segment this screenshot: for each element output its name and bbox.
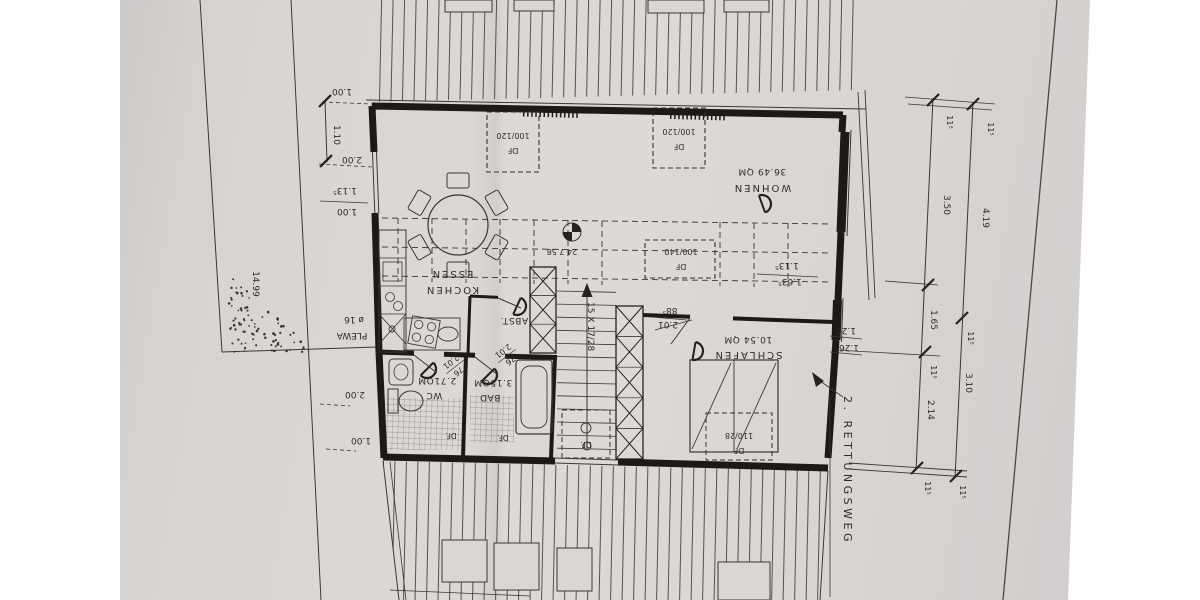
roof-window-df-3: DF	[675, 262, 686, 271]
room-label-schlafen: SCHLAFEN	[713, 349, 782, 360]
stair-roof-window-box	[562, 410, 610, 458]
roof-window-size-3: 100/140	[664, 247, 697, 256]
chimney-box	[379, 314, 406, 344]
stair-note-label: 15 X 17/28	[585, 302, 595, 352]
photo-of-floor-plan: 1.00 2.00 1.13⁵ 1.00 2.00 1.00 ø 16 PLEW…	[0, 0, 1200, 600]
roof-window-small-stairs: DF.	[580, 440, 591, 449]
dim-left-b: 2.00	[342, 154, 362, 164]
roof-window-small-wc: DF.	[445, 431, 456, 440]
washbasin	[389, 359, 413, 385]
window-dim-b: 1.26	[839, 342, 859, 352]
roof-window-box-3	[645, 240, 715, 278]
cooktop	[408, 316, 440, 348]
roof-eave-lines-right	[858, 90, 875, 300]
dim-left-bottom-b: 1.00	[351, 435, 371, 445]
dim-left-frac-top: 1.13⁵	[333, 185, 357, 195]
door-schlafen-height: 2.01	[658, 319, 678, 329]
flue-note-label: 24 7.58	[547, 247, 578, 256]
roof-hatch-bottom	[383, 461, 828, 600]
door-swing-abst	[513, 298, 529, 318]
dim-left-total: 14.99	[250, 271, 260, 297]
sill-dim-top: 1.13⁵	[775, 260, 799, 270]
door-swing-schlafen	[692, 342, 704, 361]
bathtub	[516, 360, 552, 434]
wall-thickness-5: 11⁵	[923, 481, 932, 494]
window-dim-a: 1.26	[836, 325, 856, 335]
room-label-bad: BAD	[479, 392, 500, 402]
room-area-wc: 2.71QM	[418, 375, 457, 385]
tile-floor-wc	[386, 398, 462, 450]
stair-direction-arrow	[582, 283, 593, 297]
wall-thickness-2: 11⁵	[986, 122, 995, 135]
roof-window-df-4: DF	[733, 446, 744, 455]
kitchen-sink-oval	[438, 327, 458, 341]
escape-route-label: 2. RETTUNGSWEG	[841, 396, 854, 545]
room-label-essen: ESSEN	[431, 268, 474, 279]
roof-window-size-1: 100/120	[496, 131, 529, 140]
wall-thickness-1: 11⁵	[945, 115, 954, 128]
roof-window-box-1	[487, 112, 539, 172]
room-label-wc: WC	[426, 390, 442, 400]
dim-right-inner-b: 1.65	[928, 310, 938, 330]
window-right-wall-top	[841, 130, 851, 236]
dining-table	[407, 173, 508, 277]
roof-window-df-2: DF	[673, 142, 684, 151]
roof-window-size-4: 110/28	[725, 431, 753, 440]
room-area-bad: 3.15QM	[474, 377, 513, 387]
dim-right-outer-a: 4.19	[980, 208, 990, 228]
dim-left-top: 1.00	[332, 86, 352, 96]
room-label-kochen: KOCHEN	[425, 284, 479, 295]
wall-thickness-3: 11⁵	[966, 331, 975, 344]
oven	[383, 262, 402, 281]
chimney-brand-label: PLEWA	[336, 330, 368, 340]
roof-window-size-2: 100/120	[662, 127, 695, 136]
room-label-abst: ABST.	[500, 315, 528, 325]
roof-window-small-bad: DF.	[497, 433, 508, 442]
sink-bowl-2	[394, 302, 403, 311]
sheet-border-line-right	[1003, 0, 1057, 600]
sink-bowl-1	[386, 293, 395, 302]
chimney-size-label: ø 16	[344, 314, 364, 324]
door-schlafen-width: 88⁵	[662, 305, 677, 315]
stipple-texture	[228, 278, 305, 353]
window-left-wall	[373, 152, 379, 213]
wall-thickness-4: 11⁵	[929, 365, 938, 378]
roof-window-df-1: DF	[507, 146, 518, 155]
flue-symbol	[563, 223, 581, 241]
room-area-schlafen: 10.54 QM	[724, 334, 772, 344]
door-swing-wohnen	[759, 192, 774, 212]
dining-chairs	[407, 173, 508, 277]
dim-left-frac-bottom: 1.00	[337, 206, 357, 216]
room-area-wohnen: 36.49 QM	[738, 166, 786, 176]
wall-thickness-6: 11⁵	[958, 485, 967, 498]
roof-hatch-top	[366, 0, 866, 109]
dim-right-inner-c: 2.14	[925, 400, 935, 420]
dim-right-inner-a: 3.50	[941, 195, 951, 215]
stair-roof-window-symbol	[581, 423, 591, 433]
escape-route-arrow	[812, 372, 824, 387]
dim-left-bottom-a: 2.00	[345, 389, 365, 399]
dim-left-a: 1.10	[331, 125, 341, 145]
sill-dim-bottom: 1.63⁵	[778, 276, 802, 286]
dim-right-outer-b: 3.10	[963, 373, 973, 393]
room-label-wohnen: WOHNEN	[733, 182, 792, 193]
